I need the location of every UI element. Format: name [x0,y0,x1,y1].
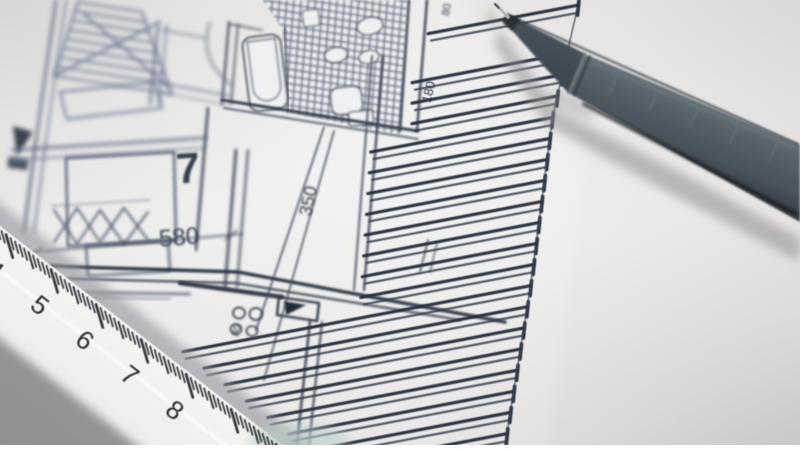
svg-text:80: 80 [440,2,454,16]
svg-text:7: 7 [174,144,201,194]
svg-text:580: 580 [158,222,200,252]
